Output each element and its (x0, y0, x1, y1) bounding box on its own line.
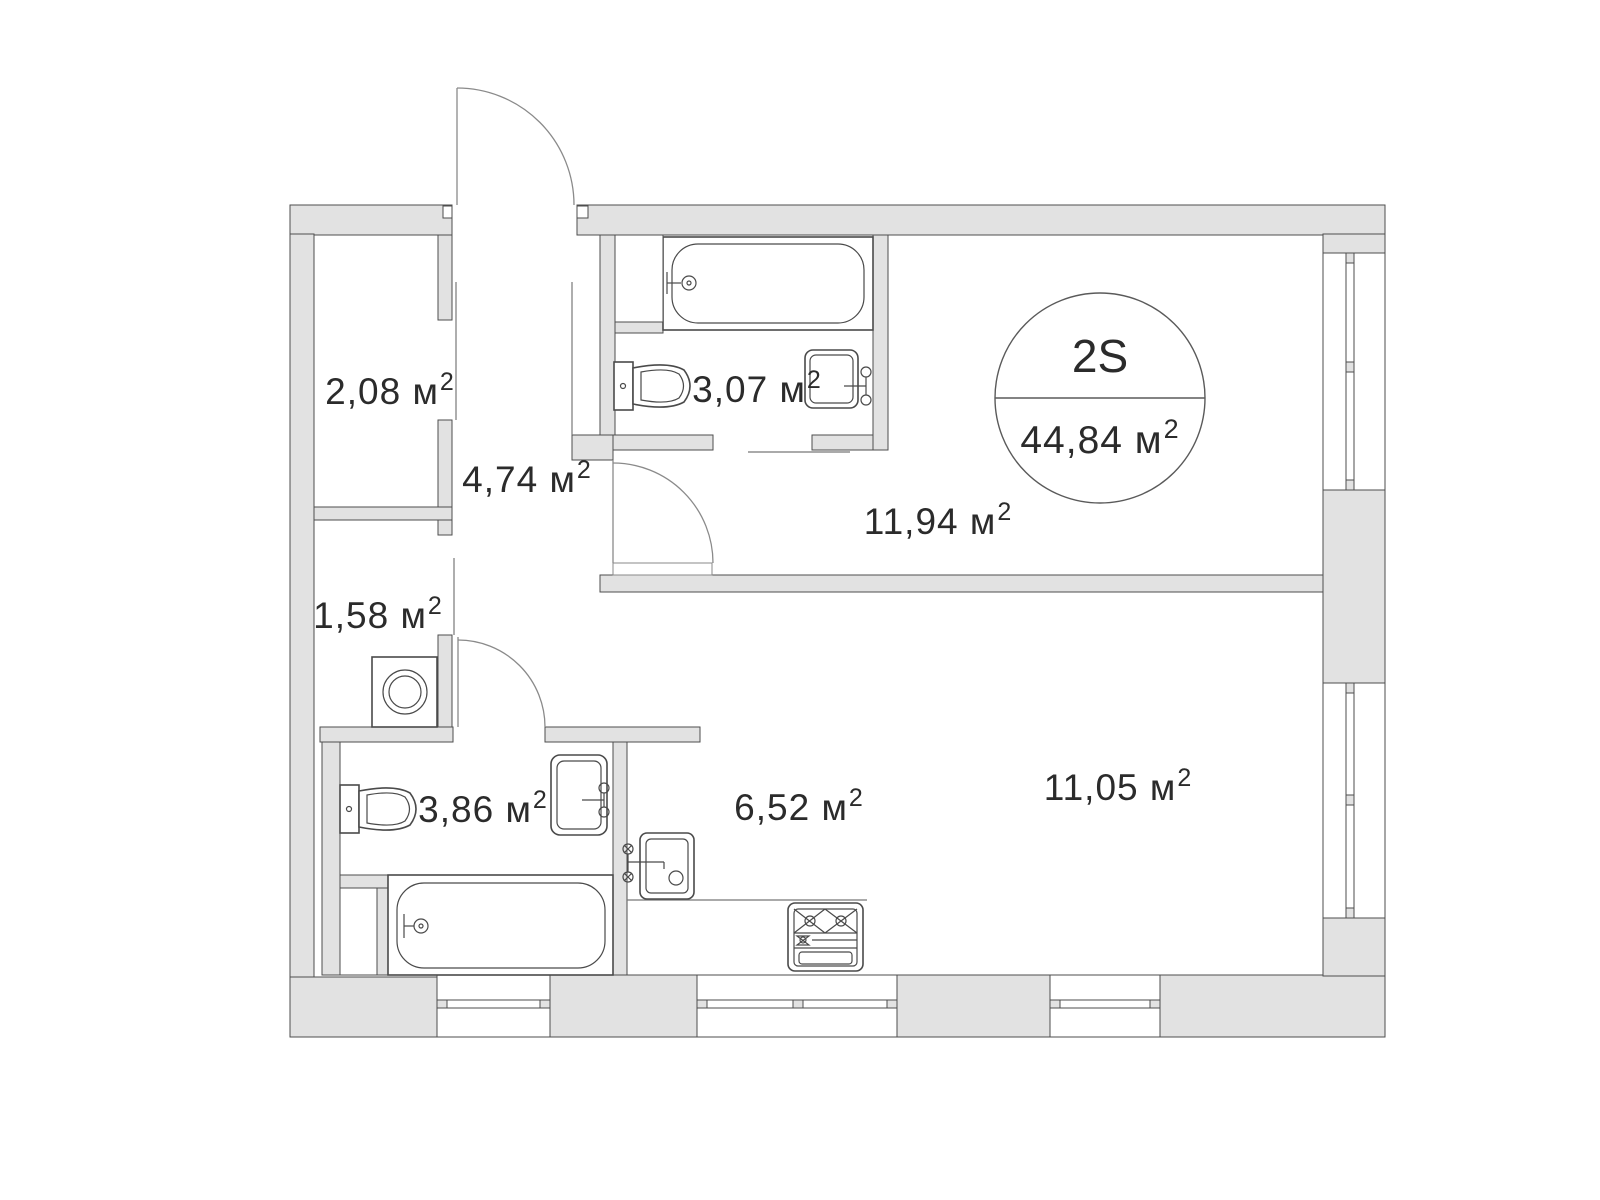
wall-laundry-right (438, 635, 452, 727)
room-area-label-kitchen: 6,52 м2 (734, 784, 864, 828)
room-area-label-laundry: 1,58 м2 (313, 592, 443, 636)
wall-storage-bottom (314, 507, 452, 520)
window-right-2 (1323, 683, 1385, 918)
entrance-frame-notch-right (577, 206, 588, 218)
wall-bottom-pier-2 (897, 975, 1050, 1037)
wall-left (290, 234, 314, 977)
window-right-1 (1323, 253, 1385, 490)
duct-niche-bottom (340, 888, 377, 975)
wall-bottom-pier-1 (550, 975, 697, 1037)
duct-niche-top (615, 235, 663, 322)
badge-area-sup: 2 (1164, 414, 1180, 444)
wall-right-bottom (1323, 918, 1385, 976)
wall-bath2-top-left (320, 727, 453, 742)
wall-bath1-bottom-left (600, 435, 713, 450)
wall-storage-right-top (438, 235, 452, 320)
toilet-bottom (340, 785, 416, 833)
wall-bath1-bottom-right (812, 435, 873, 450)
room-area-label-storage: 2,08 м2 (325, 368, 455, 412)
kitchen-sink (623, 833, 694, 899)
wall-top-left (290, 205, 452, 235)
bedroom-door (613, 460, 713, 575)
floor-plan-canvas: 2S 44,84 м2 2,08 м2 4,74 м2 3,07 м2 11,9… (0, 0, 1600, 1200)
badge-type-label: 2S (1072, 330, 1128, 382)
washing-machine (372, 657, 437, 727)
wall-bath1-right (873, 235, 888, 450)
wall-niche2-side (377, 888, 388, 975)
wall-niche2-top (340, 875, 388, 888)
wall-kitchen-divider (613, 742, 627, 975)
room-area-label-living-room: 11,05 м2 (1044, 764, 1192, 808)
window-bottom-2 (697, 975, 897, 1037)
wall-corner-bottom-right (1160, 975, 1385, 1037)
wall-corner-top-right (1323, 234, 1385, 253)
window-bottom-1 (437, 975, 550, 1037)
bathtub-bottom (388, 875, 613, 975)
wall-bath1-left (600, 235, 615, 435)
wall-between-rooms (600, 575, 1323, 592)
stove (788, 903, 863, 971)
bathroom-bottom-door (458, 637, 545, 727)
room-area-label-bedroom: 11,94 м2 (864, 498, 1012, 542)
entrance-door (457, 88, 574, 205)
bathtub-top (663, 237, 873, 330)
entrance-frame-notch-left (443, 206, 452, 218)
wall-niche1-bottom (615, 322, 663, 333)
room-area-label-bathroom-bottom: 3,86 м2 (418, 786, 548, 830)
plan-badge: 2S 44,84 м2 (995, 293, 1205, 503)
wall-right-pier (1323, 490, 1385, 683)
window-bottom-3 (1050, 975, 1160, 1037)
wall-bath2-top-right (545, 727, 700, 742)
wall-corner-bottom-left (290, 977, 437, 1037)
room-area-label-hallway: 4,74 м2 (462, 456, 592, 500)
sink-bottom (551, 755, 609, 835)
wall-top-right (577, 205, 1385, 235)
badge-area-label: 44,84 м2 (1020, 414, 1179, 462)
wall-bath2-left (322, 742, 340, 975)
toilet-top (614, 362, 690, 410)
floor-plan-page: 2S 44,84 м2 2,08 м2 4,74 м2 3,07 м2 11,9… (0, 0, 1600, 1200)
room-area-label-bathroom-top: 3,07 м2 (692, 366, 822, 410)
badge-area-value: 44,84 м (1020, 419, 1162, 462)
